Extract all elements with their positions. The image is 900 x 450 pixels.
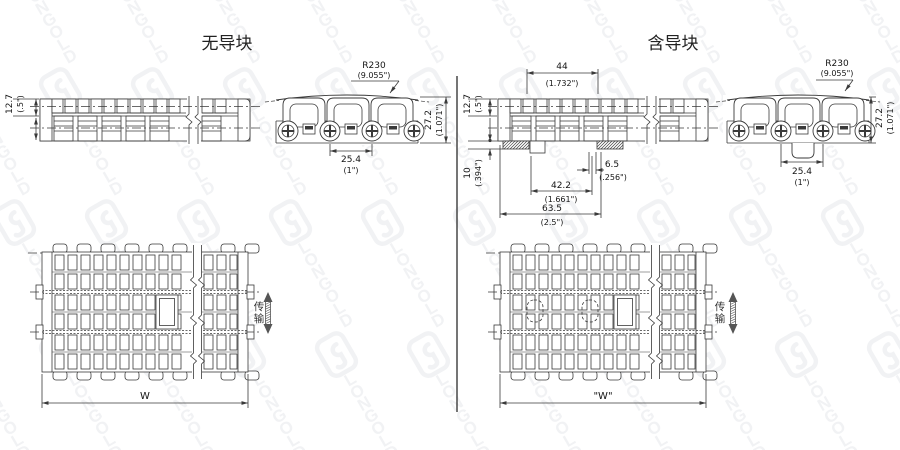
dim-guide-width-mm: 6.5 (605, 160, 619, 170)
transfer-label-left-char1: 传 (254, 301, 265, 313)
dim-right-endheight-mm: 27.2 (875, 108, 885, 128)
dim-left-pitch-mm: 25.4 (341, 155, 361, 165)
dimension-arrow (330, 149, 337, 153)
dimension-arrow (488, 110, 492, 117)
dimension-arrow (500, 401, 507, 405)
side-view-plain-tooth (169, 99, 180, 113)
side-view-plain-tooth (52, 99, 63, 113)
dimension-arrow (592, 71, 599, 75)
side-view-plain-tooth (78, 99, 89, 113)
dim-left-height-mm: 12.7 (5, 94, 15, 114)
dimension-arrow (817, 160, 824, 164)
end-view-with-guide-slot-bar (798, 126, 806, 130)
side-view-with-guide-tooth (562, 99, 573, 113)
dimension-arrow (444, 137, 448, 144)
drawing-sheet: L O N G O L DL O N G O L DL O N G O L DL… (0, 0, 900, 450)
dimension-arrow (34, 134, 38, 141)
end-view-with-guide-link-window (829, 104, 857, 127)
side-view-plain-tooth (156, 99, 167, 113)
side-view-with-guide-tooth (601, 99, 612, 113)
dim-guide-span-in: (1.661") (545, 195, 578, 204)
dimension-arrow (488, 149, 492, 156)
dimension-arrow (500, 212, 507, 216)
transfer-label-right-char1: 传 (715, 301, 726, 313)
side-view-plain-tooth (117, 99, 128, 113)
end-view-with-guide-link-window (785, 104, 813, 127)
side-view-plain-tooth (91, 99, 102, 113)
dim-module-width-in: (2.5") (541, 218, 564, 227)
dimension-arrow (242, 401, 249, 405)
side-view-with-guide-guide-tab (530, 141, 545, 153)
title-without-guide: 无导块 (202, 34, 253, 54)
end-view-with-guide-slot-bar (756, 126, 764, 130)
dimension-arrow (366, 149, 373, 153)
dimension-arrow (586, 189, 593, 193)
dimension-arrow (444, 97, 448, 104)
side-view-plain-tooth (202, 99, 213, 113)
dimension-arrow (583, 168, 590, 172)
drawing-geometry (13, 69, 880, 408)
side-view-with-guide-tooth (575, 99, 586, 113)
side-view-with-guide-guide-shoe (597, 141, 623, 149)
dimension-arrow (531, 189, 538, 193)
dim-right-pitch-mm: 25.4 (792, 167, 812, 177)
side-view-plain-right-cap (238, 99, 250, 141)
dim-left-endheight-in: (1.071") (435, 104, 444, 137)
dim-guide-height-mm: 10 (463, 167, 473, 179)
dimension-arrow (700, 401, 707, 405)
dimension-arrow (34, 110, 38, 117)
dim-right-pitch-in: (1") (794, 178, 809, 187)
dimension-arrow (595, 212, 602, 216)
dim-right-height-mm: 12.7 (463, 94, 473, 114)
dim-left-radius-mm: R230 (362, 61, 386, 71)
dimension-arrow (781, 160, 788, 164)
side-view-with-guide-tooth (588, 99, 599, 113)
dim-guide-span-mm: 42.2 (551, 181, 571, 191)
side-view-plain-tooth (215, 99, 226, 113)
transfer-label-left-char2: 输 (254, 312, 265, 325)
end-view-plain-slot-bar (305, 126, 313, 130)
dimension-arrow (488, 99, 492, 106)
side-view-plain-tooth (143, 99, 154, 113)
dim-left-belt-width: W (140, 391, 150, 402)
side-view-with-guide-tooth (510, 99, 521, 113)
dim-right-endheight-in: (1.071") (886, 102, 895, 135)
dimension-arrow (596, 168, 603, 172)
dimension-arrow (42, 401, 49, 405)
transfer-direction-arrow-head (264, 324, 273, 334)
side-view-with-guide-tooth (536, 99, 547, 113)
dim-guide-height-in: (.394") (474, 159, 483, 187)
side-view-plain-tooth (130, 99, 141, 113)
dim-module-width-mm: 63.5 (542, 204, 562, 214)
dim-right-belt-width: "W" (593, 391, 612, 402)
side-view-plain-left-cap (40, 99, 52, 141)
dim-top-width-in: (1.732") (546, 79, 579, 88)
side-view-plain-tooth (104, 99, 115, 113)
side-view-with-guide-right-cap (696, 99, 708, 141)
side-view-with-guide-left-cap (498, 99, 510, 141)
transfer-direction-arrow-head (729, 324, 738, 334)
dim-top-width-mm: 44 (556, 62, 568, 72)
dimension-arrow (34, 99, 38, 106)
side-view-with-guide-tooth (660, 99, 671, 113)
end-view-with-guide-guide-tab (792, 143, 814, 158)
dimension-arrow (34, 118, 38, 125)
end-view-plain-link-window (378, 104, 406, 127)
end-view-with-guide-slot-bar (840, 126, 848, 130)
side-view-with-guide-tooth (549, 99, 560, 113)
transfer-label-right-char2: 输 (715, 312, 726, 325)
side-view-with-guide-guide-shoe (503, 141, 529, 149)
side-view-with-guide-tooth (614, 99, 625, 113)
end-view-plain-slot-bar (389, 126, 397, 130)
dim-right-radius-in: (9.055") (821, 69, 854, 78)
technical-drawing: 无导块 含导块 12.7 (.5") R230 (9.055") 27.2 (1… (0, 0, 900, 450)
side-view-with-guide-tooth (673, 99, 684, 113)
dim-right-radius-mm: R230 (825, 59, 849, 69)
dim-left-pitch-in: (1") (343, 166, 358, 175)
dimension-arrow (527, 71, 534, 75)
end-view-plain-link-window (334, 104, 362, 127)
title-with-guide: 含导块 (648, 34, 699, 54)
side-view-with-guide-tooth (627, 99, 638, 113)
dim-left-height-in: (.5") (16, 95, 25, 113)
dim-right-height-in: (.5") (474, 95, 483, 113)
dim-guide-width-in: (.256") (599, 173, 627, 182)
dim-left-endheight-mm: 27.2 (424, 110, 434, 130)
dim-left-radius-in: (9.055") (358, 71, 391, 80)
side-view-plain-tooth (65, 99, 76, 113)
transfer-direction-arrow-head (264, 292, 273, 302)
side-view-with-guide-tooth (523, 99, 534, 113)
transfer-direction-arrow-head (729, 292, 738, 302)
leader-arrow (845, 84, 851, 91)
end-view-plain-slot-bar (347, 126, 355, 130)
